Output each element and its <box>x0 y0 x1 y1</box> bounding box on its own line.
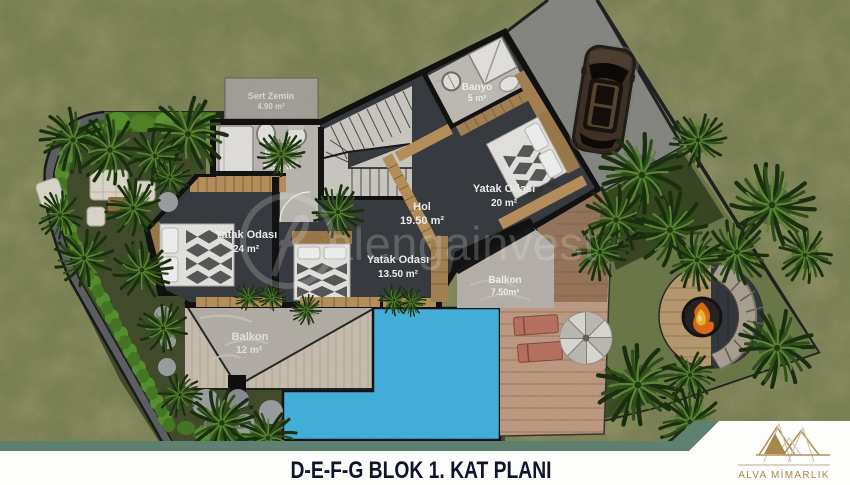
svg-text:ALVA MİMARLIK: ALVA MİMARLIK <box>738 468 830 481</box>
svg-text:D-E-F-G BLOK 1. KAT PLANI: D-E-F-G BLOK 1. KAT PLANI <box>291 457 552 484</box>
